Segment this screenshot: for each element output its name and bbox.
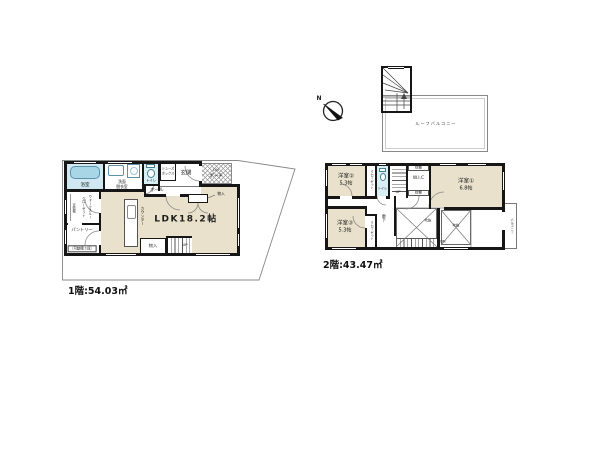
wall: [99, 213, 101, 231]
window: [196, 253, 230, 256]
room-label-bedroom3-size: 5.3帖: [339, 229, 352, 234]
wall: [352, 196, 377, 199]
window: [325, 170, 328, 186]
label-shoebox-2: ボックス: [162, 172, 175, 175]
room-label-hall: ホール: [150, 188, 164, 193]
washing-machine-drum: [130, 167, 138, 175]
wall: [406, 163, 408, 198]
label-wic-shelf-top: 枕棚: [415, 166, 422, 169]
wall: [99, 245, 101, 256]
window: [332, 163, 346, 166]
room-label-toilet2: トイレ: [378, 187, 388, 190]
label-void-b: 吹抜: [453, 224, 460, 227]
wall: [166, 236, 168, 256]
window: [74, 161, 96, 164]
window: [64, 230, 67, 244]
toilet1-bowl: [147, 169, 155, 178]
toilet2-bowl: [380, 173, 387, 181]
room-label-walkthrough-closet-2: クローゼット: [81, 197, 84, 217]
label-stairs-up-floor1: UP: [182, 243, 187, 247]
wall: [375, 163, 377, 198]
wall: [386, 196, 390, 199]
room-label-entrance: 玄関: [180, 171, 191, 177]
room-label-hallway: 廊下: [383, 214, 387, 222]
label-counter: カウンター: [141, 207, 145, 226]
room-label-storage: 物入: [149, 244, 157, 248]
wall: [199, 184, 240, 187]
window: [237, 198, 240, 228]
wall: [429, 163, 431, 209]
wall: [64, 223, 68, 225]
wall: [365, 206, 367, 250]
room-label-bedroom1-size: 6.8帖: [460, 187, 473, 192]
wall: [82, 223, 101, 225]
wall: [325, 206, 365, 209]
window: [502, 172, 505, 190]
window: [325, 214, 328, 238]
wall: [375, 214, 377, 250]
room-label-bedroom2: 洋室②: [338, 174, 354, 180]
window: [440, 163, 456, 166]
window: [106, 253, 136, 256]
label-ldk-closet: 物入: [217, 192, 225, 196]
floorplan-canvas: 浴室 洗面 脱衣室 トイレ シューズ ボックス 玄関 ホール DN ポーチ LD…: [0, 0, 611, 461]
label-pantry-note: （可動棚３段）: [68, 245, 97, 252]
kitchen-sink: [127, 205, 136, 219]
window: [332, 247, 356, 250]
wall: [388, 163, 390, 198]
room-label-balcony: バルコニー: [509, 218, 512, 234]
room-label-closet-a: クローゼット: [369, 170, 372, 189]
room-label-bedroom2-size: 5.3帖: [340, 182, 353, 187]
room-label-bath: 浴室: [81, 183, 90, 188]
label-wic-shelf-bottom: 枕棚: [415, 191, 422, 194]
room-label-porch: ポーチ: [209, 174, 223, 179]
compass-icon: [324, 102, 343, 121]
label-closet-shelf: 可動棚: [71, 203, 74, 213]
toilet2-tank: [379, 168, 386, 172]
room-label-bedroom3: 洋室③: [337, 221, 353, 227]
wall: [64, 189, 144, 192]
toilet1-tank: [146, 164, 155, 168]
window: [350, 163, 362, 166]
label-void-a: 吹抜: [425, 219, 432, 222]
ldk-closet: [188, 194, 208, 203]
label-shoebox-1: シューズ: [162, 167, 175, 170]
label-stairs-dn-floor2: DN: [440, 240, 445, 243]
entrance-door-gap: [199, 166, 202, 181]
bathtub: [70, 166, 100, 179]
room-label-washroom-2: 脱衣室: [116, 185, 127, 189]
room-label-closet-b: クローゼット: [369, 221, 372, 240]
floor2-caption: 2階:43.47㎡: [323, 257, 382, 271]
wall: [394, 196, 396, 236]
window: [379, 163, 386, 166]
wall: [103, 161, 105, 191]
window: [468, 163, 486, 166]
wall: [99, 189, 101, 199]
label-porch-dn: DN: [213, 168, 219, 172]
wall: [180, 194, 188, 197]
label-roof-balcony: ルーフバルコニー: [415, 122, 456, 126]
label-stairs-up-floor2: UP: [395, 190, 400, 194]
wall: [144, 194, 166, 197]
balcony-door-gap: [502, 212, 505, 230]
leader-line: [208, 195, 215, 198]
window: [108, 161, 132, 164]
room-label-pantry: パントリー: [71, 228, 92, 232]
compass-north-label: N: [316, 96, 321, 102]
wall: [365, 163, 367, 198]
wall: [166, 236, 192, 238]
bedroom3-door-gap: [365, 216, 367, 228]
room-label-bedroom1: 洋室①: [458, 179, 474, 185]
room-label-wic: W.I.C: [413, 177, 424, 182]
window: [64, 200, 67, 214]
room-label-walkthrough-closet-1: ウォークスルー: [87, 195, 90, 219]
room-label-ldk: LDK18.2帖: [154, 216, 217, 225]
void-cross-lines: [394, 208, 502, 247]
wall: [444, 207, 505, 210]
roof-stairs-enclosure: [381, 66, 412, 113]
entry-step-line: [160, 186, 199, 187]
wall: [325, 196, 340, 199]
window: [444, 247, 468, 250]
window: [388, 66, 404, 69]
floor1-caption: 1階:54.03㎡: [68, 283, 127, 297]
room-label-toilet1: トイレ: [146, 179, 156, 182]
window: [237, 234, 240, 246]
vanity-sink: [108, 165, 124, 176]
